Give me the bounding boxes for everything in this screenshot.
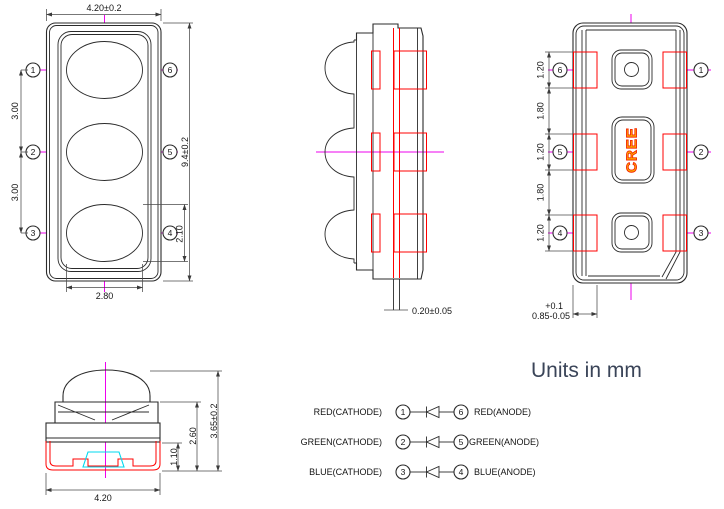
- pinout-cathode-pin: 2: [401, 437, 406, 447]
- dim-back-3: 1.20: [536, 143, 546, 161]
- back-pin-right-3: 3: [699, 228, 704, 238]
- dim-side-lead-thickness: 0.20±0.05: [412, 306, 452, 316]
- dim-end-body-height: 2.60: [188, 427, 198, 445]
- side-bottom-lead: 0.20±0.05: [384, 279, 452, 316]
- pinout-row-blue: BLUE(CATHODE) 3 4 BLUE(ANODE): [309, 465, 535, 479]
- back-pin-left-4: 4: [558, 228, 563, 238]
- back-pin-right-2: 2: [699, 147, 704, 157]
- pinout-row-green: GREEN(CATHODE) 2 5 GREEN(ANODE): [301, 435, 539, 449]
- front-pin-right-4: 4: [168, 228, 173, 238]
- led-datasheet-drawing: 1 2 3 6 5 4 4.20±0.2 3.00 3.00: [0, 0, 724, 509]
- back-view: CREE 6 5 4 1 2 3: [532, 14, 711, 321]
- front-pin-left-1: 1: [31, 65, 36, 75]
- dim-front-pitch-upper: 3.00: [10, 102, 20, 120]
- dim-end-width: 4.20: [94, 493, 112, 503]
- pinout-anode-label: BLUE(ANODE): [474, 467, 536, 477]
- pinout-cathode-label: GREEN(CATHODE): [301, 437, 382, 447]
- dim-front-lens-width: 2.80: [96, 291, 114, 301]
- back-pin-left-5: 5: [558, 147, 563, 157]
- pinout-anode-pin: 4: [459, 467, 464, 477]
- dim-end-clip-height: 1.10: [169, 448, 179, 466]
- pinout-diagram: RED(CATHODE) 1 6 RED(ANODE) GREEN(CATHOD…: [301, 405, 539, 479]
- dim-front-width: 4.20±0.2: [87, 3, 122, 13]
- end-body-outline: [46, 370, 160, 442]
- pinout-row-red: RED(CATHODE) 1 6 RED(ANODE): [314, 405, 531, 419]
- back-pin-right-1: 1: [699, 65, 704, 75]
- dim-back-pad: 0.85-0.05: [532, 311, 570, 321]
- diode-symbol-icon: [411, 437, 454, 448]
- back-pin-left-6: 6: [558, 65, 563, 75]
- dim-back-1: 1.20: [536, 61, 546, 79]
- front-pin-left-3: 3: [31, 228, 36, 238]
- end-metal-clip: [46, 441, 160, 470]
- pinout-cathode-label: BLUE(CATHODE): [309, 467, 382, 477]
- front-pin-right-6: 6: [168, 65, 173, 75]
- drawing-svg: 1 2 3 6 5 4 4.20±0.2 3.00 3.00: [0, 0, 724, 509]
- pinout-anode-pin: 6: [459, 407, 464, 417]
- dim-front-pitch-lower: 3.00: [10, 184, 20, 202]
- front-package-outline: [47, 23, 162, 281]
- dim-front-height: 9.4±0.2: [180, 137, 190, 167]
- end-view: 1.10 2.60 3.65±0.2 4.20: [46, 362, 222, 503]
- pinout-cathode-pin: 3: [401, 467, 406, 477]
- side-lead-frame: [372, 28, 427, 278]
- front-pin-left-2: 2: [31, 147, 36, 157]
- dim-front-lens-height: 2.10: [175, 225, 185, 243]
- units-note: Units in mm: [531, 359, 642, 382]
- dim-back-pad-tol: +0.1: [545, 301, 563, 311]
- dim-back-2: 1.80: [536, 102, 546, 120]
- pinout-cathode-label: RED(CATHODE): [314, 407, 382, 417]
- pinout-anode-label: GREEN(ANODE): [469, 437, 539, 447]
- dim-back-5: 1.20: [536, 224, 546, 242]
- front-view: 1 2 3 6 5 4 4.20±0.2 3.00 3.00: [10, 3, 193, 301]
- pinout-cathode-pin: 1: [401, 407, 406, 417]
- brand-logo-text: CREE: [624, 127, 641, 173]
- dim-end-total-height: 3.65±0.2: [209, 404, 219, 439]
- pinout-anode-pin: 5: [459, 437, 464, 447]
- pinout-anode-label: RED(ANODE): [474, 407, 531, 417]
- front-pin-right-5: 5: [168, 147, 173, 157]
- side-view: 0.20±0.05: [316, 24, 452, 316]
- diode-symbol-icon: [411, 407, 454, 418]
- end-dome: [63, 370, 150, 402]
- diode-symbol-icon: [411, 467, 454, 478]
- dim-back-4: 1.80: [536, 184, 546, 202]
